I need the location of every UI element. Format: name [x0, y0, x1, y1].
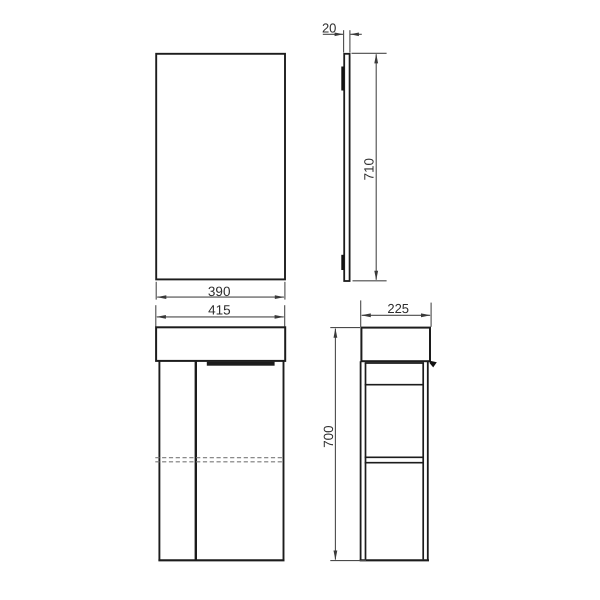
svg-text:700: 700 [321, 425, 336, 447]
svg-text:710: 710 [362, 158, 377, 180]
svg-text:390: 390 [208, 284, 231, 299]
svg-text:415: 415 [208, 302, 231, 317]
svg-text:225: 225 [387, 301, 409, 316]
svg-text:20: 20 [322, 21, 336, 36]
